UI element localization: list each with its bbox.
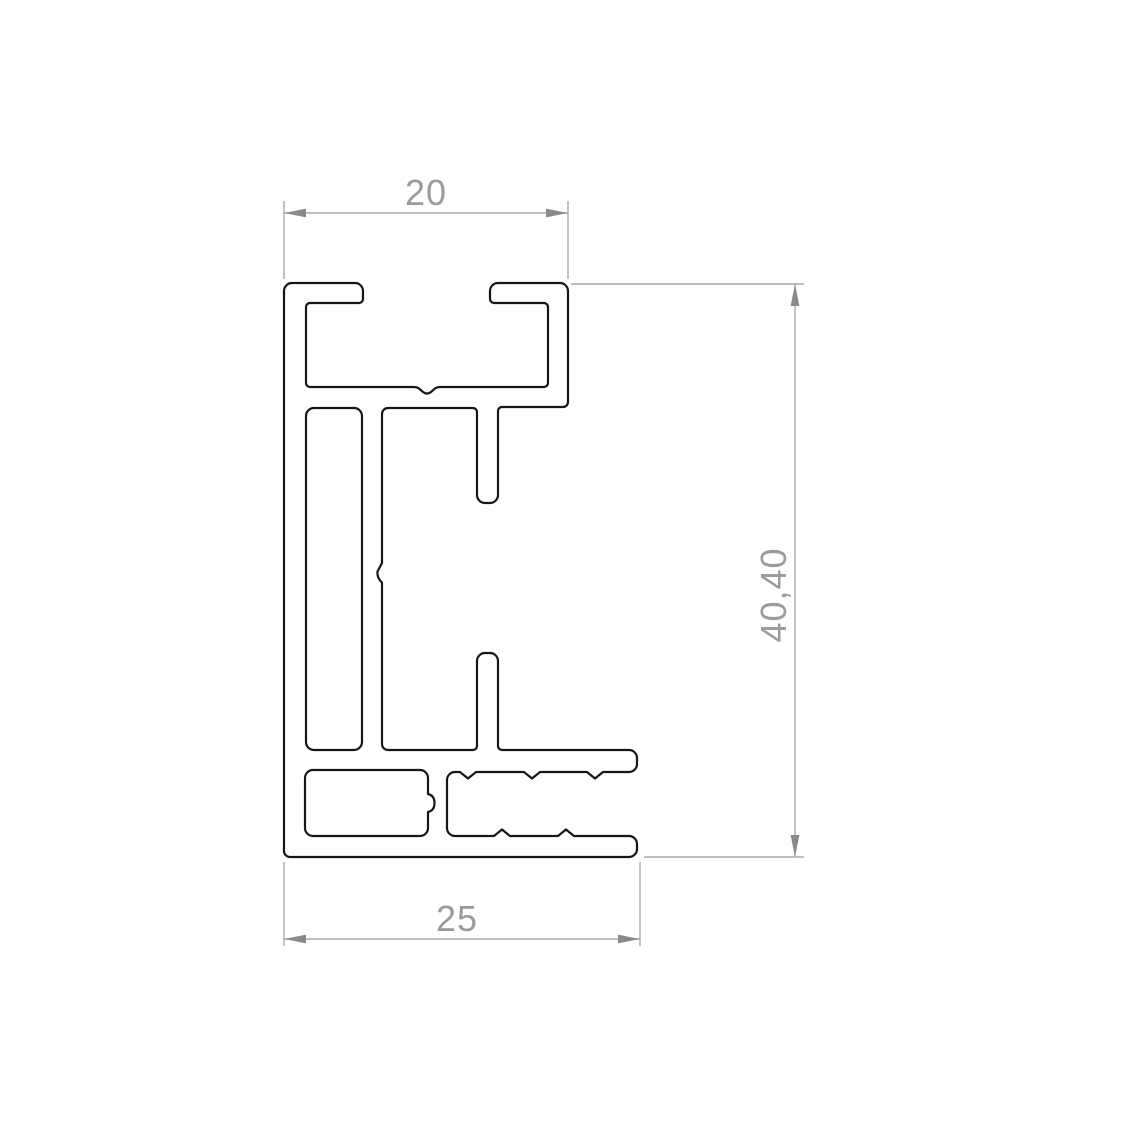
drawing-canvas: 20 25 40,40 — [0, 0, 1124, 1124]
profile-bottom-chamber-cavity — [305, 770, 435, 836]
dimension-labels: 20 25 40,40 — [405, 172, 794, 939]
profile-slot-cavity — [306, 408, 362, 750]
dim-top-label: 20 — [405, 172, 447, 213]
profile-geometry — [284, 283, 637, 857]
dim-bottom-arrow-right — [618, 935, 640, 944]
profile-drawing: 20 25 40,40 — [0, 0, 1124, 1124]
dim-top-arrow-right — [546, 209, 568, 218]
dim-height-label: 40,40 — [753, 547, 794, 642]
dim-bottom-arrow-left — [284, 935, 306, 944]
dim-top-arrow-left — [284, 209, 306, 218]
dim-bottom-label: 25 — [436, 898, 478, 939]
dim-height-arrow-top — [791, 284, 800, 306]
dim-height-arrow-bottom — [791, 835, 800, 857]
